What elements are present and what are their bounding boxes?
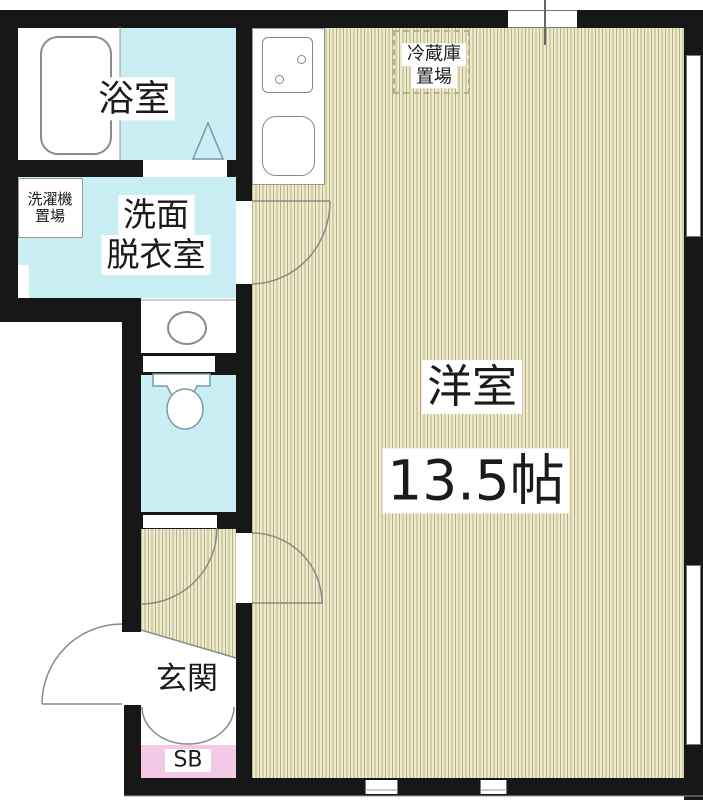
wall-corridor-left bbox=[122, 300, 141, 632]
toilet-door-opening bbox=[143, 515, 217, 528]
basin-door-opening bbox=[143, 356, 215, 372]
wall-washroom-bottom bbox=[0, 298, 141, 322]
wall-center-lower bbox=[236, 603, 252, 778]
wall-bottom bbox=[124, 778, 703, 796]
fridge-label: 冷蔵庫 置場 bbox=[402, 43, 466, 88]
main-room-size-label: 13.5帖 bbox=[382, 448, 569, 513]
shoe-box-label: SB bbox=[173, 747, 202, 772]
bathroom-door-opening bbox=[143, 160, 227, 177]
kitchen-stove-unit bbox=[262, 37, 313, 93]
right-window-lower bbox=[686, 565, 701, 745]
stove-knob-left bbox=[275, 75, 284, 84]
floor-plan: 浴室 洗濯機 置場 洗面 脱衣室 冷蔵庫 置場 洋室 13.5帖 玄関 SB bbox=[0, 0, 703, 800]
wash-basin bbox=[167, 311, 207, 345]
bottom-vent-left bbox=[365, 780, 398, 794]
wall-top bbox=[0, 10, 703, 28]
bottom-vent-right bbox=[480, 780, 507, 794]
stove-knob-right bbox=[297, 55, 306, 64]
laundry-label: 洗濯機 置場 bbox=[27, 191, 72, 226]
entrance-door-arc bbox=[42, 624, 122, 704]
main-room-label: 洋室 bbox=[422, 360, 522, 414]
washroom-label: 洗面 脱衣室 bbox=[102, 195, 211, 275]
bathroom-label: 浴室 bbox=[93, 77, 175, 120]
left-wall-window bbox=[18, 265, 29, 298]
toilet-room-floor bbox=[141, 375, 236, 512]
wall-entrance-left bbox=[124, 705, 141, 778]
top-window bbox=[508, 10, 577, 28]
wall-center-upper bbox=[236, 27, 252, 201]
kitchen-sink bbox=[262, 116, 315, 176]
entrance-label: 玄関 bbox=[156, 662, 218, 698]
wall-center-middle bbox=[236, 284, 252, 533]
right-window-upper bbox=[686, 55, 701, 237]
